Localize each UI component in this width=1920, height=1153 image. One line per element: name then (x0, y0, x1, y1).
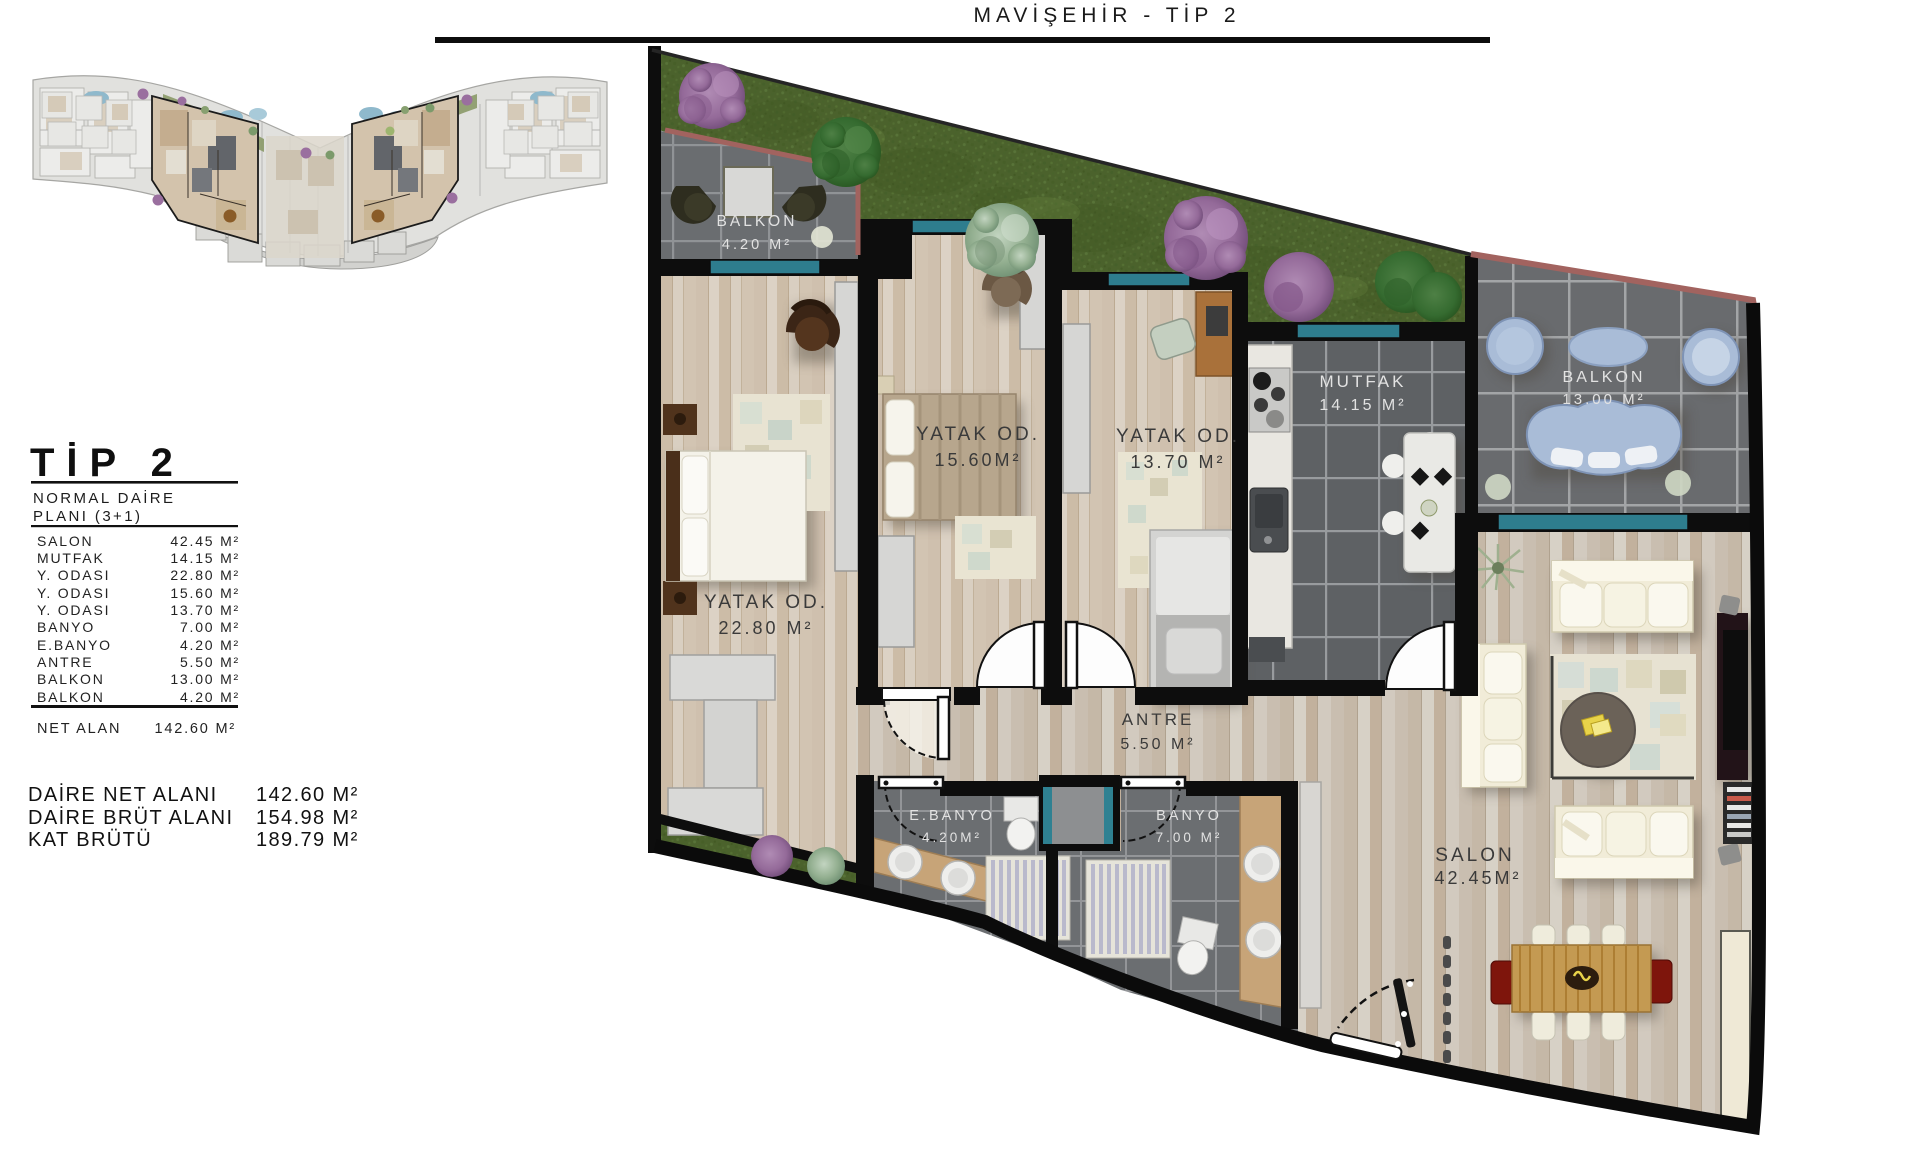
svg-text:NET ALAN: NET ALAN (37, 721, 121, 737)
svg-text:142.60 M²: 142.60 M² (155, 721, 237, 737)
svg-text:PLANI (3+1): PLANI (3+1) (33, 508, 142, 525)
svg-text:DAİRE BRÜT ALANI: DAİRE BRÜT ALANI (28, 806, 233, 829)
svg-text:14.15 M²: 14.15 M² (1319, 397, 1406, 414)
svg-text:7.00 M²: 7.00 M² (1156, 830, 1223, 845)
svg-text:7.00 M²: 7.00 M² (180, 619, 240, 635)
svg-text:MUTFAK: MUTFAK (1320, 372, 1407, 391)
svg-text:13.70 M²: 13.70 M² (170, 602, 240, 618)
svg-text:TİP 2: TİP 2 (30, 441, 185, 485)
svg-text:22.80 M²: 22.80 M² (170, 567, 240, 583)
svg-text:MAVİŞEHİR - TİP 2: MAVİŞEHİR - TİP 2 (973, 4, 1240, 27)
svg-text:YATAK OD.: YATAK OD. (916, 424, 1040, 445)
svg-text:BALKON: BALKON (717, 213, 798, 230)
svg-text:15.60M²: 15.60M² (934, 450, 1021, 470)
svg-text:154.98 M²: 154.98 M² (256, 807, 359, 829)
svg-text:22.80 M²: 22.80 M² (718, 618, 813, 638)
svg-text:SALON: SALON (1435, 845, 1514, 866)
svg-text:13.00 M²: 13.00 M² (1562, 391, 1645, 408)
svg-text:Y. ODASI: Y. ODASI (37, 602, 110, 618)
svg-text:KAT BRÜTÜ: KAT BRÜTÜ (28, 829, 152, 851)
svg-text:5.50 M²: 5.50 M² (1120, 736, 1195, 753)
svg-text:Y. ODASI: Y. ODASI (37, 567, 110, 583)
svg-text:E.BANYO: E.BANYO (37, 637, 112, 653)
svg-text:14.15 M²: 14.15 M² (170, 550, 240, 566)
svg-text:ANTRE: ANTRE (1122, 710, 1195, 729)
svg-text:BALKON: BALKON (37, 671, 105, 687)
svg-text:Y. ODASI: Y. ODASI (37, 585, 110, 601)
svg-text:5.50 M²: 5.50 M² (180, 654, 240, 670)
svg-text:BALKON: BALKON (37, 689, 105, 705)
svg-text:189.79 M²: 189.79 M² (256, 829, 359, 851)
svg-text:YATAK OD.: YATAK OD. (704, 592, 828, 613)
svg-text:MUTFAK: MUTFAK (37, 550, 105, 566)
svg-text:4.20 M²: 4.20 M² (180, 637, 240, 653)
svg-text:42.45 M²: 42.45 M² (170, 533, 240, 549)
svg-text:SALON: SALON (37, 533, 93, 549)
svg-text:4.20M²: 4.20M² (922, 830, 982, 845)
svg-text:NORMAL DAİRE: NORMAL DAİRE (33, 489, 175, 507)
svg-text:13.70 M²: 13.70 M² (1130, 452, 1225, 472)
svg-text:4.20 M²: 4.20 M² (180, 689, 240, 705)
svg-text:BALKON: BALKON (1563, 369, 1646, 386)
svg-text:13.00 M²: 13.00 M² (170, 671, 240, 687)
svg-text:42.45M²: 42.45M² (1434, 868, 1521, 888)
svg-text:142.60 M²: 142.60 M² (256, 784, 359, 806)
svg-text:4.20 M²: 4.20 M² (722, 237, 792, 253)
svg-text:ANTRE: ANTRE (37, 654, 93, 670)
svg-text:15.60 M²: 15.60 M² (170, 585, 240, 601)
svg-text:BANYO: BANYO (1156, 808, 1222, 824)
svg-text:YATAK OD.: YATAK OD. (1116, 426, 1240, 447)
svg-text:BANYO: BANYO (37, 619, 95, 635)
svg-text:E.BANYO: E.BANYO (909, 808, 994, 824)
svg-text:DAİRE NET ALANI: DAİRE NET ALANI (28, 783, 218, 806)
